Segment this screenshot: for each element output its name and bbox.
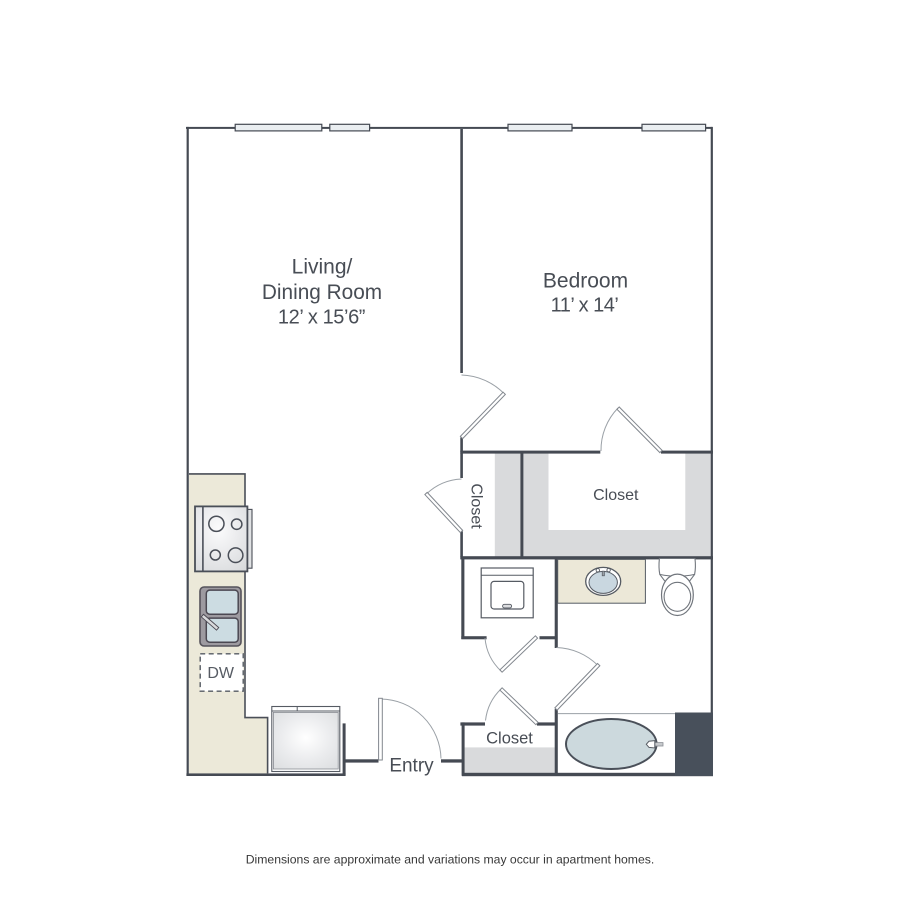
svg-text:Bedroom: Bedroom xyxy=(543,270,628,293)
svg-text:Closet: Closet xyxy=(593,487,639,504)
svg-text:11’ x 14’: 11’ x 14’ xyxy=(551,295,619,317)
svg-text:Closet: Closet xyxy=(468,483,485,529)
svg-text:Dimensions are approximate and: Dimensions are approximate and variation… xyxy=(246,852,654,866)
svg-text:12’ x 15’6”: 12’ x 15’6” xyxy=(278,307,365,329)
svg-text:Entry: Entry xyxy=(389,756,434,777)
svg-text:DW: DW xyxy=(207,665,235,682)
svg-text:Living/: Living/ xyxy=(292,256,353,279)
svg-text:Closet: Closet xyxy=(486,730,533,748)
svg-text:Dining Room: Dining Room xyxy=(262,281,382,304)
